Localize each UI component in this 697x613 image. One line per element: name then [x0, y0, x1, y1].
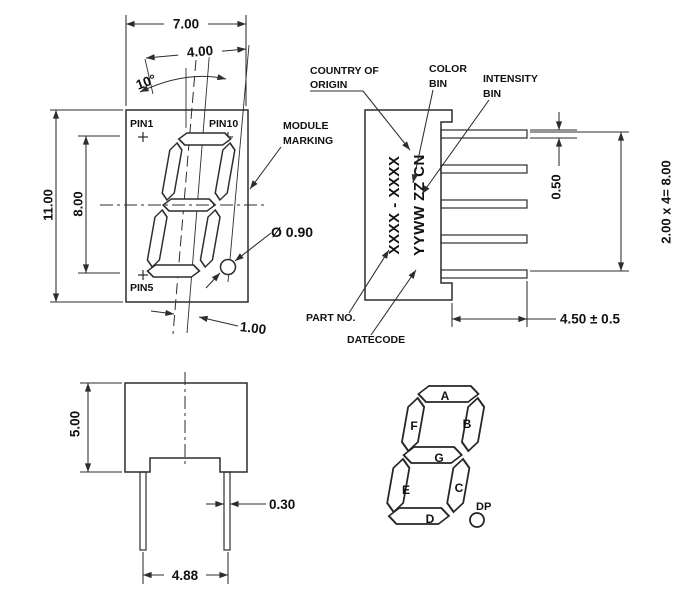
segment-g-label: G — [434, 451, 443, 465]
datecode-label: DATECODE — [347, 334, 405, 346]
dim-dp-offset: 1.00 — [151, 311, 267, 337]
country-label-line2: ORIGIN — [310, 79, 347, 91]
technical-drawing-svg: 7.00 4.00 10° 11.00 — [0, 0, 697, 613]
bottom-view: 5.00 0.30 4.88 — [68, 372, 296, 584]
pin — [441, 270, 527, 278]
dp-diameter-callout: Ø 0.90 — [206, 224, 313, 288]
pin5-cross — [138, 270, 148, 280]
dim-pin-pitch-label: 2.00 x 4= 8.00 — [659, 160, 674, 244]
segment-diagram: A F B G E C D DP — [383, 386, 491, 527]
country-label-line1: COUNTRY OF — [310, 65, 379, 77]
dim-pin-thickness: 0.50 — [530, 112, 577, 200]
dim-pin-pitch: 2.00 x 4= 8.00 — [530, 132, 674, 271]
segment-b-label: B — [463, 417, 472, 431]
dim-height-label: 11.00 — [41, 189, 56, 221]
side-body — [365, 110, 452, 300]
segment-d-label: D — [426, 512, 435, 526]
dim-digit-height-label: 8.00 — [71, 191, 86, 216]
intensity-bin-label-line2: BIN — [483, 88, 501, 100]
bottom-pin-right — [224, 472, 230, 550]
module-marking-callout: MODULE MARKING — [250, 120, 333, 189]
dim-digit-width-label: 4.00 — [186, 43, 213, 60]
segment-f-label: F — [410, 419, 417, 433]
pin — [441, 200, 527, 208]
dim-body-height-label: 5.00 — [68, 411, 83, 437]
pin1-label: PIN1 — [130, 118, 154, 130]
segment-c-label: C — [455, 481, 464, 495]
module-marking-line2: MARKING — [283, 135, 333, 147]
segment-e-label: E — [402, 483, 410, 497]
digit-centerline — [173, 60, 196, 334]
decimal-point-circle — [221, 260, 236, 275]
dim-angle: 10° — [134, 71, 226, 92]
front-view: 7.00 4.00 10° 11.00 — [41, 15, 334, 337]
part-no-callout: PART NO. — [306, 250, 389, 324]
dim-angle-label: 10° — [134, 71, 158, 92]
color-bin-label-line2: BIN — [429, 78, 447, 90]
intensity-bin-label-line1: INTENSITY — [483, 73, 538, 85]
pin1-cross — [138, 132, 148, 142]
datecode-callout: DATECODE — [347, 270, 416, 346]
color-bin-label-line1: COLOR — [429, 63, 467, 75]
dim-digit-width: 4.00 — [146, 42, 246, 61]
bottom-body — [125, 383, 247, 472]
pin — [441, 130, 527, 138]
marking-part-number: XXXX - XXXX — [386, 156, 403, 255]
segment-g-shape — [402, 447, 463, 463]
part-no-label: PART NO. — [306, 312, 355, 324]
marking-datecode: YYWW ZZ CN — [411, 154, 428, 256]
dim-body-height: 5.00 — [68, 383, 123, 472]
dim-pin-span: 4.88 — [143, 552, 228, 584]
pin — [441, 235, 527, 243]
side-pins — [441, 130, 527, 278]
dim-pin-length: 4.50 ± 0.5 — [452, 281, 620, 327]
dp-diameter-label: Ø 0.90 — [271, 224, 313, 240]
side-view: XXXX - XXXX YYWW ZZ CN COUNTRY OF ORIGIN… — [306, 63, 674, 346]
dim-dp-offset-label: 1.00 — [239, 319, 267, 337]
dim-pin-width: 0.30 — [206, 497, 295, 512]
segment-d-shape — [387, 508, 450, 524]
dim-width-label: 7.00 — [173, 17, 199, 32]
dim-pin-width-label: 0.30 — [269, 497, 295, 512]
dim-pin-length-label: 4.50 ± 0.5 — [560, 312, 620, 327]
datasheet-drawing: 7.00 4.00 10° 11.00 — [0, 0, 697, 613]
dp-segment-circle — [470, 513, 484, 527]
dim-pin-thickness-label: 0.50 — [549, 174, 564, 199]
dp-segment-label: DP — [476, 501, 491, 513]
intensity-bin-callout: INTENSITY BIN — [422, 73, 538, 194]
pin — [441, 165, 527, 173]
pin10-label: PIN10 — [209, 118, 238, 130]
module-marking-line1: MODULE — [283, 120, 329, 132]
segment-a-label: A — [441, 389, 450, 403]
dim-pin-span-label: 4.88 — [172, 568, 199, 583]
pin5-label: PIN5 — [130, 282, 154, 294]
bottom-pin-left — [140, 472, 146, 550]
